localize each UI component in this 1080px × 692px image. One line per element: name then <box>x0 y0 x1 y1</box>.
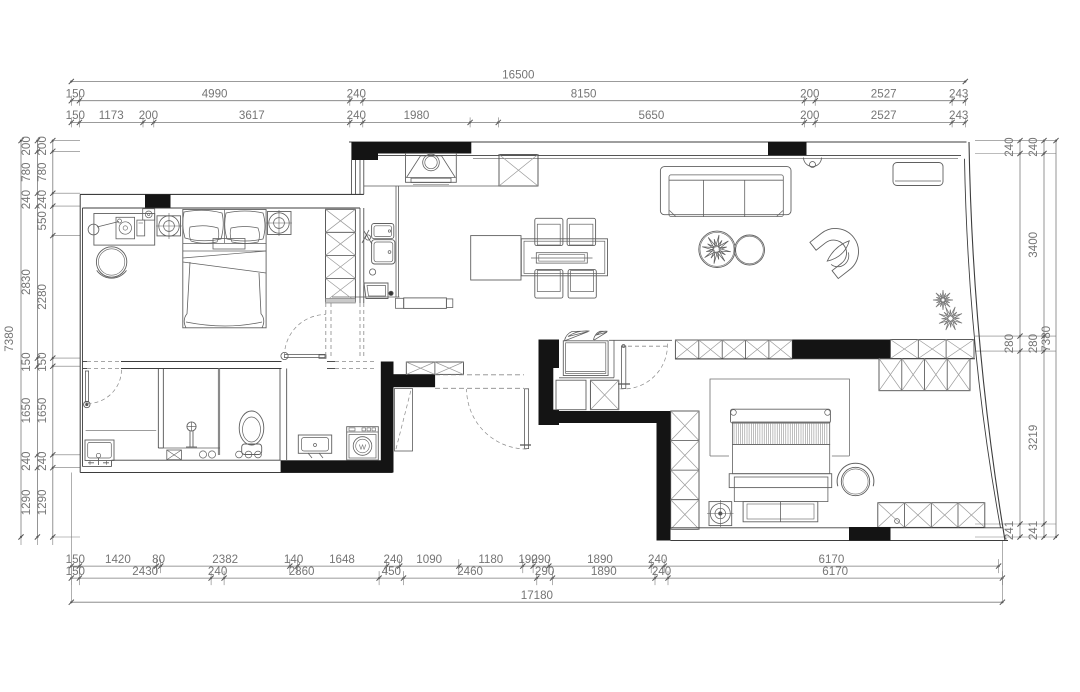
svg-text:6170: 6170 <box>822 565 848 578</box>
svg-text:3219: 3219 <box>1027 425 1040 451</box>
svg-text:1290: 1290 <box>20 490 33 516</box>
svg-text:1090: 1090 <box>416 553 442 566</box>
svg-text:1290: 1290 <box>36 490 49 516</box>
svg-text:1650: 1650 <box>36 398 49 424</box>
svg-text:240: 240 <box>652 565 671 578</box>
svg-text:240: 240 <box>347 109 366 122</box>
svg-text:4990: 4990 <box>202 88 228 101</box>
svg-text:780: 780 <box>36 163 49 182</box>
svg-text:240: 240 <box>36 190 49 209</box>
svg-text:2280: 2280 <box>36 284 49 310</box>
svg-text:16500: 16500 <box>502 68 534 81</box>
svg-text:2860: 2860 <box>289 565 315 578</box>
svg-text:2527: 2527 <box>871 109 897 122</box>
svg-text:150: 150 <box>20 352 33 371</box>
svg-text:150: 150 <box>66 565 85 578</box>
svg-text:200: 200 <box>139 109 158 122</box>
svg-text:1650: 1650 <box>20 398 33 424</box>
svg-text:150: 150 <box>36 352 49 371</box>
svg-text:243: 243 <box>949 109 968 122</box>
svg-text:200: 200 <box>800 88 819 101</box>
svg-text:450: 450 <box>382 565 401 578</box>
svg-text:8150: 8150 <box>571 88 597 101</box>
svg-text:240: 240 <box>20 452 33 471</box>
svg-text:3617: 3617 <box>239 109 265 122</box>
svg-text:150: 150 <box>66 88 85 101</box>
svg-text:2460: 2460 <box>457 565 483 578</box>
svg-text:280: 280 <box>1027 334 1040 353</box>
svg-text:1890: 1890 <box>591 565 617 578</box>
svg-text:780: 780 <box>20 163 33 182</box>
svg-text:1173: 1173 <box>99 109 124 122</box>
svg-text:240: 240 <box>208 565 227 578</box>
svg-text:290: 290 <box>535 565 554 578</box>
svg-text:280: 280 <box>1003 334 1016 353</box>
svg-text:200: 200 <box>20 136 33 155</box>
svg-text:2830: 2830 <box>20 269 33 295</box>
svg-text:240: 240 <box>20 190 33 209</box>
svg-text:7380: 7380 <box>3 326 16 352</box>
svg-text:2527: 2527 <box>871 88 897 101</box>
svg-text:243: 243 <box>949 88 968 101</box>
svg-text:200: 200 <box>800 109 819 122</box>
svg-text:240: 240 <box>347 88 366 101</box>
svg-text:1980: 1980 <box>404 109 430 122</box>
svg-text:2430: 2430 <box>132 565 158 578</box>
svg-text:150: 150 <box>66 109 85 122</box>
svg-text:W: W <box>359 443 367 452</box>
svg-text:17180: 17180 <box>521 589 553 602</box>
svg-text:200: 200 <box>36 136 49 155</box>
svg-text:240: 240 <box>36 452 49 471</box>
svg-text:1420: 1420 <box>105 553 131 566</box>
svg-text:3400: 3400 <box>1027 232 1040 258</box>
svg-text:5650: 5650 <box>639 109 665 122</box>
svg-text:1648: 1648 <box>329 553 355 566</box>
svg-text:550: 550 <box>36 211 49 230</box>
svg-text:7380: 7380 <box>1040 326 1053 352</box>
